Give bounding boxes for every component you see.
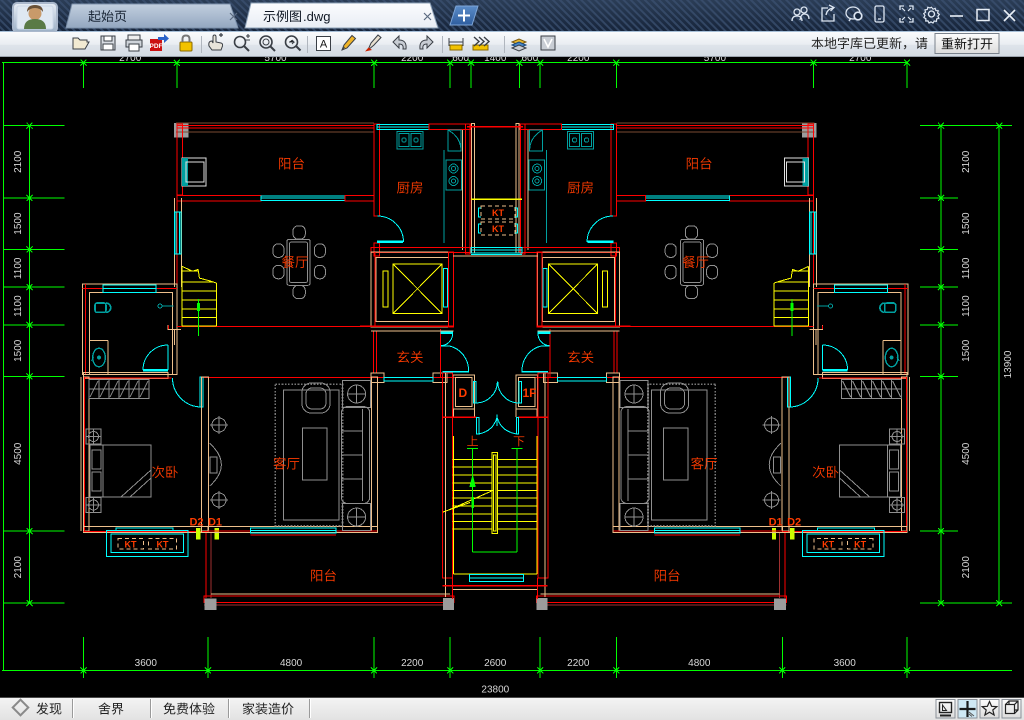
svg-text:1500: 1500 bbox=[13, 212, 24, 235]
svg-text:.dwg: .dwg bbox=[303, 9, 330, 24]
svg-text:23800: 23800 bbox=[481, 685, 509, 696]
svg-text:2100: 2100 bbox=[961, 556, 972, 579]
svg-text:13900: 13900 bbox=[1003, 350, 1014, 378]
svg-text:2100: 2100 bbox=[13, 150, 24, 173]
svg-text:4800: 4800 bbox=[280, 658, 303, 669]
svg-text:D1: D1 bbox=[208, 517, 222, 529]
svg-text:KT: KT bbox=[492, 208, 504, 218]
svg-text:D2: D2 bbox=[189, 517, 203, 529]
svg-text:KT: KT bbox=[492, 224, 504, 234]
svg-text:1F: 1F bbox=[522, 386, 536, 400]
svg-text:A: A bbox=[320, 39, 328, 51]
svg-text:D1: D1 bbox=[769, 517, 783, 529]
svg-text:2600: 2600 bbox=[484, 658, 507, 669]
svg-text:1500: 1500 bbox=[961, 212, 972, 235]
svg-text:2100: 2100 bbox=[961, 150, 972, 173]
svg-text:4800: 4800 bbox=[688, 658, 711, 669]
svg-text:1100: 1100 bbox=[13, 295, 24, 317]
svg-text:PDF: PDF bbox=[150, 43, 163, 50]
svg-text:1100: 1100 bbox=[961, 257, 972, 279]
svg-text:KT: KT bbox=[125, 540, 137, 550]
svg-text:KT: KT bbox=[157, 540, 169, 550]
svg-text:1100: 1100 bbox=[961, 295, 972, 317]
svg-text:3600: 3600 bbox=[135, 658, 158, 669]
svg-text:2200: 2200 bbox=[567, 658, 590, 669]
svg-text:4500: 4500 bbox=[961, 442, 972, 465]
svg-text:1500: 1500 bbox=[13, 339, 24, 362]
svg-text:D2: D2 bbox=[787, 517, 801, 529]
svg-text:KT: KT bbox=[822, 540, 834, 550]
svg-text:4500: 4500 bbox=[13, 442, 24, 465]
svg-text:D: D bbox=[458, 386, 467, 400]
svg-text:1100: 1100 bbox=[13, 257, 24, 279]
svg-text:1500: 1500 bbox=[961, 339, 972, 362]
svg-text:2200: 2200 bbox=[401, 658, 424, 669]
svg-text:KT: KT bbox=[854, 540, 866, 550]
svg-text:3600: 3600 bbox=[834, 658, 857, 669]
svg-text:2100: 2100 bbox=[13, 556, 24, 579]
